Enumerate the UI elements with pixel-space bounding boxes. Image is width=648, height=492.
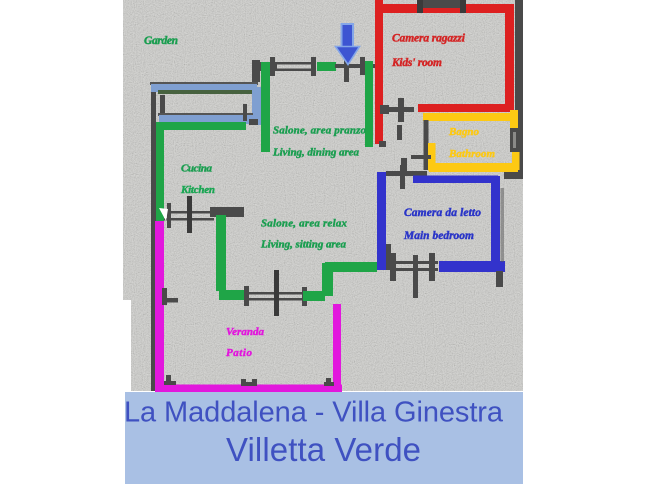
svg-text:Patio: Patio [226,347,253,359]
svg-text:Salone, area pranzo: Salone, area pranzo [273,125,367,137]
svg-text:Kitchen: Kitchen [180,184,215,196]
svg-text:Main bedroom: Main bedroom [403,230,474,242]
svg-text:Kids' room: Kids' room [391,57,442,69]
svg-text:Villetta Verde: Villetta Verde [226,431,421,468]
svg-text:Camera da letto: Camera da letto [404,207,481,219]
svg-text:Living, dining area: Living, dining area [272,147,360,159]
svg-text:Bathroom: Bathroom [448,148,495,160]
svg-text:Cucina: Cucina [181,163,213,175]
svg-text:Veranda: Veranda [226,326,265,338]
svg-text:La Maddalena - Villa Ginestra: La Maddalena - Villa Ginestra [124,397,504,429]
svg-text:Garden: Garden [144,35,178,47]
svg-text:Salone, area relax: Salone, area relax [261,218,348,230]
svg-text:Camera ragazzi: Camera ragazzi [392,33,466,45]
svg-text:Living, sitting area: Living, sitting area [260,239,347,251]
svg-text:Bagno: Bagno [448,126,480,138]
